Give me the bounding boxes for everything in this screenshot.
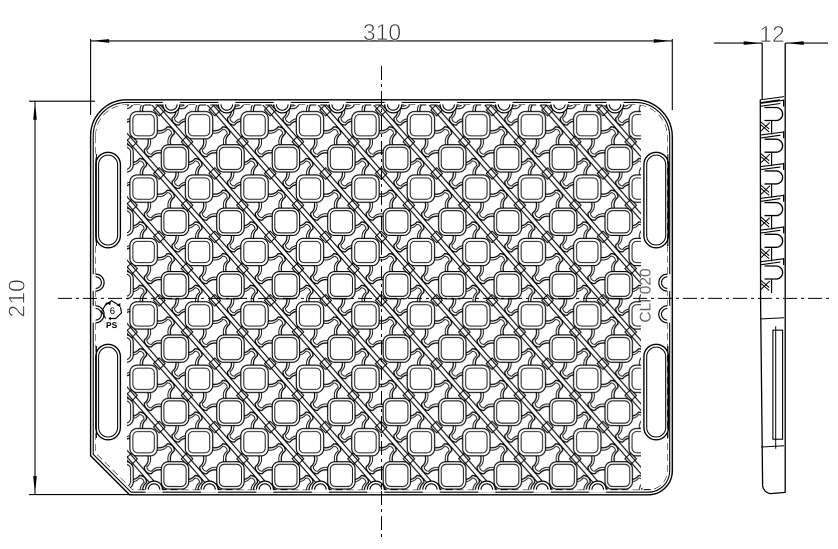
svg-text:PS: PS [106, 320, 118, 330]
svg-text:6: 6 [110, 306, 115, 317]
svg-text:310: 310 [363, 19, 401, 45]
svg-text:210: 210 [4, 279, 30, 317]
svg-text:CLI 020: CLI 020 [638, 268, 655, 323]
svg-text:12: 12 [759, 21, 785, 47]
